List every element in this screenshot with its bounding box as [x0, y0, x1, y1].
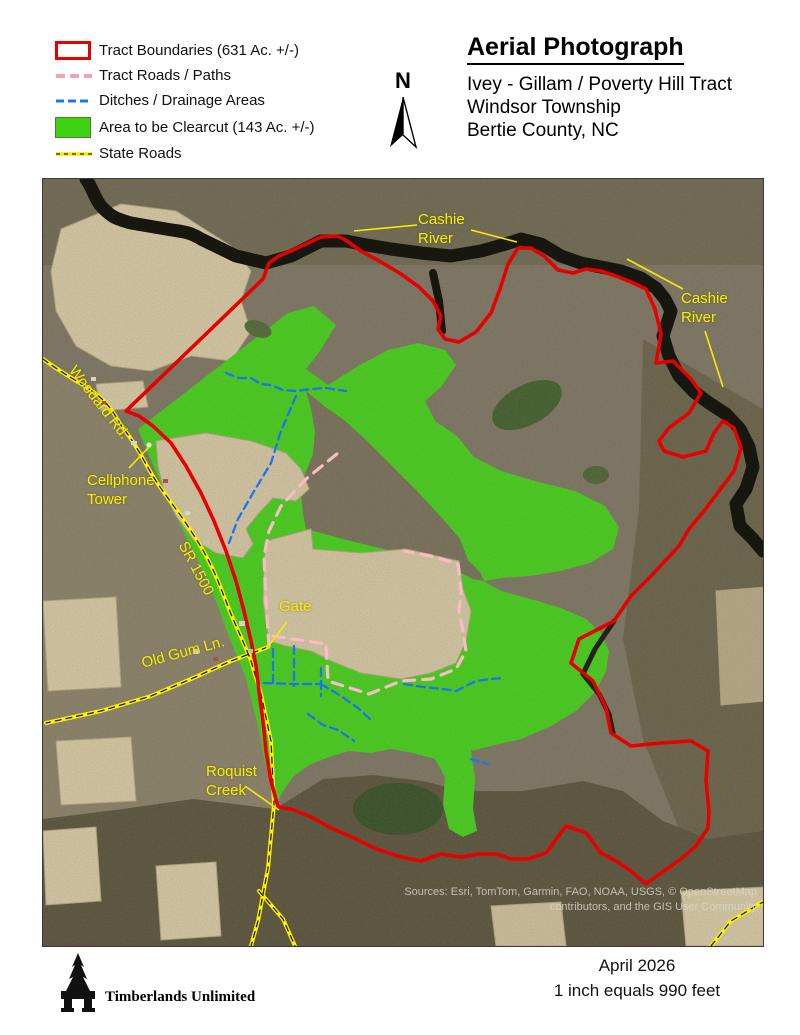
legend-item-ditches: Ditches / Drainage Areas — [55, 90, 385, 111]
clearcut-swatch-icon — [55, 117, 95, 138]
page-title: Aerial Photograph — [467, 33, 684, 65]
legend-label: Tract Boundaries (631 Ac. +/-) — [99, 42, 299, 59]
legend-item-tract-roads: Tract Roads / Paths — [55, 65, 385, 86]
company-info-block: Timberlands Unlimited PO Box 650, Windso… — [105, 950, 505, 1035]
aerial-map-viewport: Cashie River Cashie River Woodard Rd. Ce… — [42, 178, 764, 947]
legend: Tract Boundaries (631 Ac. +/-) Tract Roa… — [55, 40, 385, 168]
north-label: N — [383, 68, 423, 94]
map-attribution: Sources: Esri, TomTom, Garmin, FAO, NOAA… — [397, 885, 757, 915]
legend-item-state-roads: State Roads — [55, 143, 385, 164]
map-scale: 1 inch equals 990 feet — [487, 978, 787, 1003]
map-label-cashie-river-2: Cashie River — [681, 289, 741, 327]
legend-item-clearcut: Area to be Clearcut (143 Ac. +/-) — [55, 115, 385, 139]
date-scale-block: April 2026 1 inch equals 990 feet — [487, 953, 787, 1003]
tract-road-dash-icon — [55, 72, 95, 80]
state-road-dash-icon — [55, 150, 95, 158]
title-subline: Windsor Township — [467, 96, 787, 119]
title-subline: Bertie County, NC — [467, 119, 787, 142]
tree-logo-icon — [56, 952, 100, 1012]
company-name: Timberlands Unlimited — [105, 988, 505, 1007]
title-block: Aerial Photograph Ivey - Gillam / Povert… — [467, 33, 787, 142]
legend-item-tract-boundaries: Tract Boundaries (631 Ac. +/-) — [55, 40, 385, 61]
map-label-gate: Gate — [279, 597, 312, 616]
legend-label: State Roads — [99, 145, 182, 162]
map-label-cashie-river-1: Cashie River — [418, 210, 480, 248]
map-label-roquist-creek: Roquist Creek — [206, 762, 276, 800]
legend-label: Area to be Clearcut (143 Ac. +/-) — [99, 119, 315, 136]
map-label-cellphone-tower: Cellphone Tower — [87, 471, 169, 509]
cellphone-tower-marker — [146, 442, 151, 447]
legend-label: Tract Roads / Paths — [99, 67, 231, 84]
north-arrow-icon — [385, 94, 421, 150]
map-date: April 2026 — [487, 953, 787, 978]
north-arrow: N — [383, 68, 423, 155]
ditch-dash-icon — [55, 97, 95, 105]
company-logo — [56, 952, 100, 1017]
legend-label: Ditches / Drainage Areas — [99, 92, 265, 109]
tract-boundary-swatch-icon — [55, 41, 95, 60]
title-subline: Ivey - Gillam / Poverty Hill Tract — [467, 73, 787, 96]
aerial-photo-graphic — [43, 179, 763, 946]
map-document-page: Tract Boundaries (631 Ac. +/-) Tract Roa… — [0, 0, 800, 1035]
